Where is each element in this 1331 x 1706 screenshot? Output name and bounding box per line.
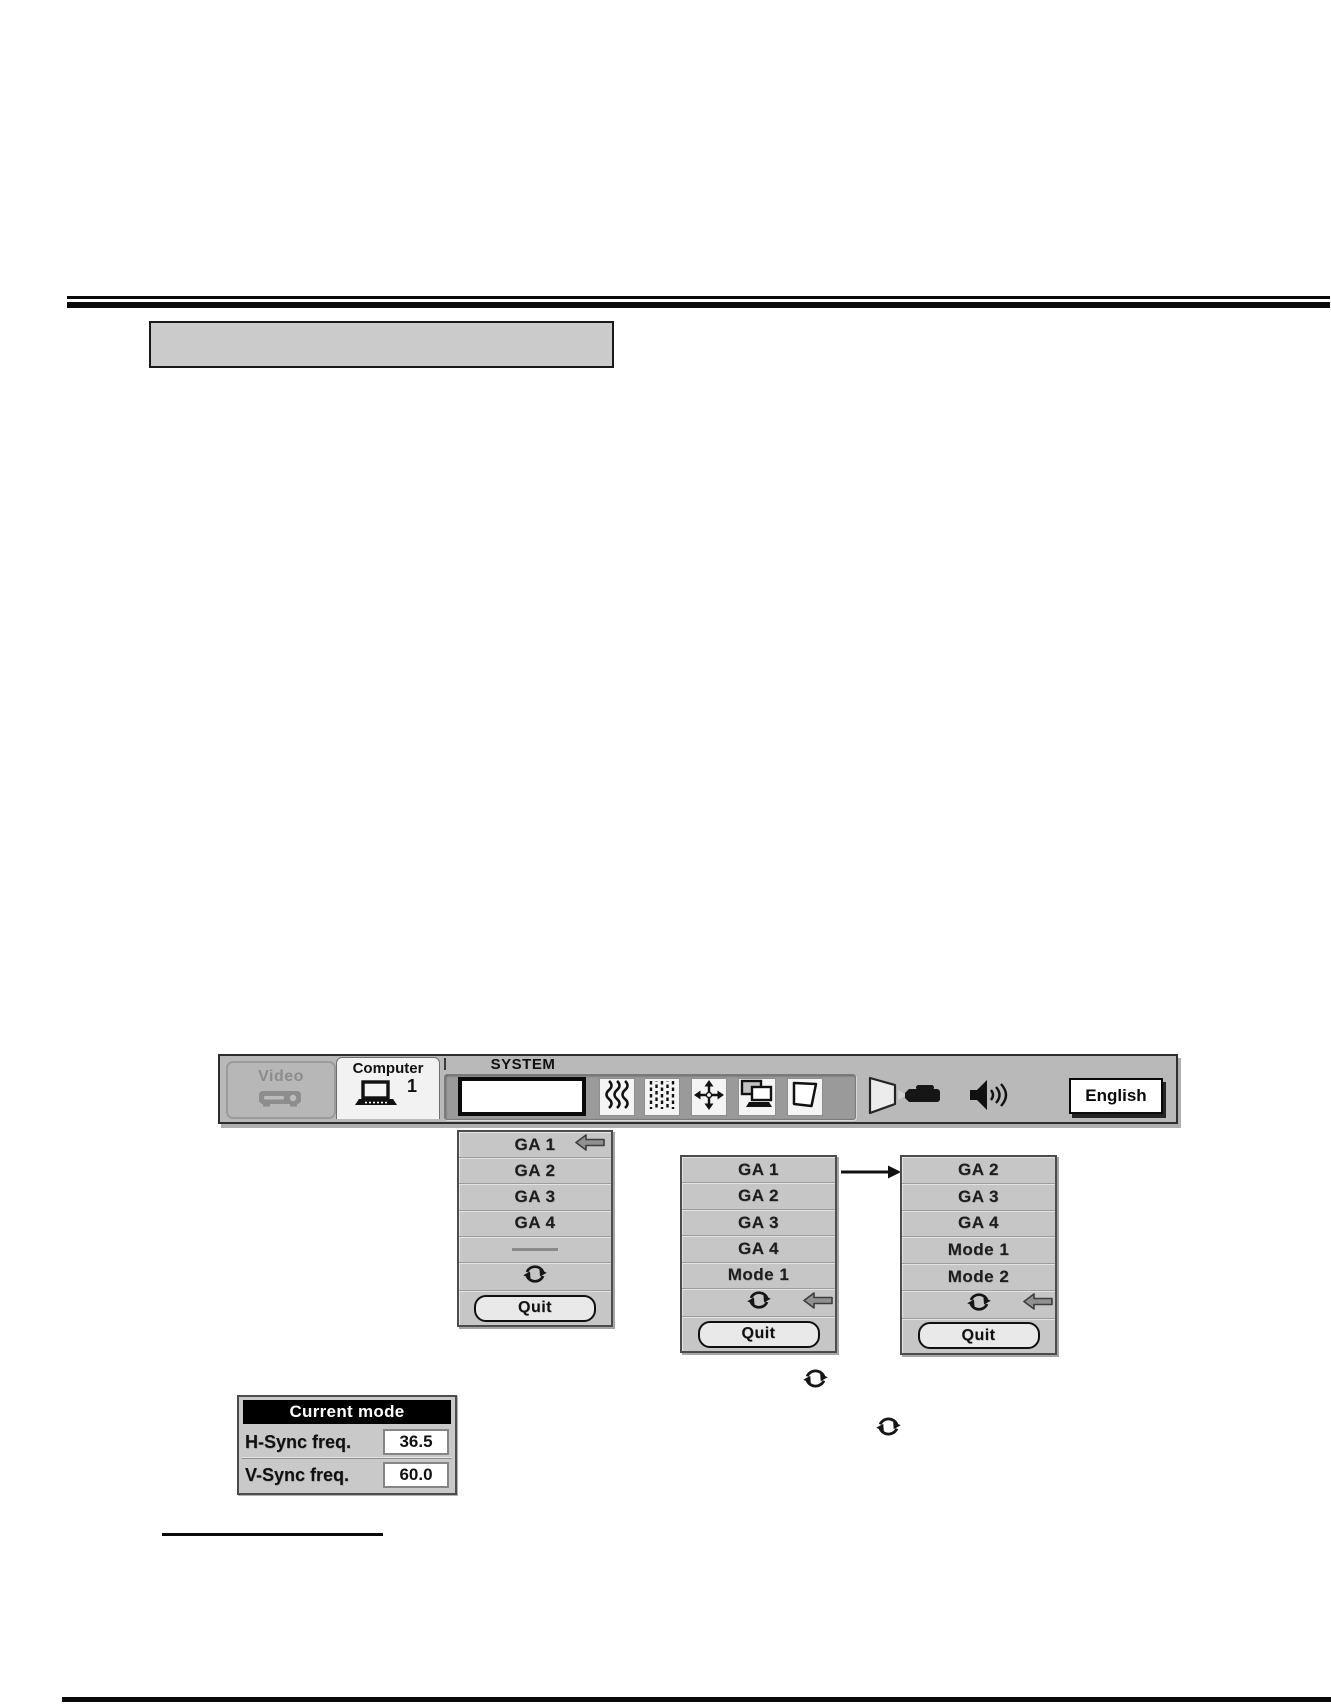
system-menu-2: GA 1 GA 2 GA 3 GA 4 Mode 1 Quit [680, 1155, 837, 1353]
computer-number: 1 [407, 1076, 417, 1097]
cycle-icon [967, 1291, 991, 1318]
menu1-item-ga2-label: GA 2 [514, 1161, 555, 1181]
v-sync-value: 60.0 [383, 1462, 449, 1488]
total-dots-button[interactable] [644, 1078, 680, 1116]
menu2-item-ga2-label: GA 2 [738, 1186, 779, 1206]
menu2-item-cycle[interactable] [682, 1289, 835, 1317]
bottom-rule [62, 1697, 1331, 1702]
cycle-icon [803, 1367, 828, 1395]
menu3-item-ga4-label: GA 4 [958, 1213, 999, 1233]
pc-adjust-button[interactable] [738, 1078, 776, 1116]
selection-pointer-icon [575, 1134, 605, 1156]
computer-tab[interactable]: Computer 1 [336, 1057, 440, 1119]
blank-dash [512, 1248, 558, 1251]
projection-icon [868, 1101, 944, 1118]
menu2-item-ga4[interactable]: GA 4 [682, 1236, 835, 1262]
v-sync-row: V-Sync freq. 60.0 [242, 1458, 452, 1491]
system-display-box [458, 1077, 586, 1116]
menu3-quit-label: Quit [962, 1327, 996, 1345]
manual-page: Video Computer 1 [0, 0, 1331, 1706]
menu3-quit-button[interactable]: Quit [918, 1322, 1040, 1349]
projection-indicator[interactable] [868, 1076, 944, 1119]
menu1-item-ga4[interactable]: GA 4 [459, 1211, 611, 1237]
menu1-quit-label: Quit [518, 1299, 552, 1317]
laptop-icon [353, 1080, 399, 1113]
top-rule-thick [67, 302, 1330, 308]
menu3-item-mode2[interactable]: Mode 2 [902, 1264, 1055, 1291]
menu3-item-ga2-label: GA 2 [958, 1160, 999, 1180]
v-sync-label: V-Sync freq. [245, 1465, 349, 1486]
menu2-item-ga2[interactable]: GA 2 [682, 1183, 835, 1209]
pc-adjust-icon [740, 1079, 774, 1116]
video-tab[interactable]: Video [226, 1061, 336, 1119]
h-sync-label: H-Sync freq. [245, 1432, 351, 1453]
menu3-item-mode1-label: Mode 1 [948, 1240, 1010, 1260]
cycle-icon [747, 1289, 771, 1316]
menu3-item-ga3-label: GA 3 [958, 1187, 999, 1207]
vcr-icon [258, 1088, 304, 1113]
menu3-item-ga2[interactable]: GA 2 [902, 1157, 1055, 1184]
osd-menu-bar: Video Computer 1 [218, 1054, 1178, 1124]
menu1-item-ga3-label: GA 3 [514, 1187, 555, 1207]
selection-pointer-icon [1023, 1293, 1053, 1315]
menu3-item-mode1[interactable]: Mode 1 [902, 1237, 1055, 1264]
fine-sync-button[interactable] [599, 1078, 635, 1116]
cycle-icon [876, 1415, 901, 1443]
screen-shape-button[interactable] [787, 1078, 823, 1116]
current-mode-panel: Current mode H-Sync freq. 36.5 V-Sync fr… [237, 1395, 457, 1495]
footnote-rule [162, 1533, 383, 1536]
menu1-item-cycle[interactable] [459, 1263, 611, 1291]
menu1-item-ga4-label: GA 4 [514, 1213, 555, 1233]
next-menu-arrow-icon [840, 1163, 902, 1186]
menu2-item-ga4-label: GA 4 [738, 1239, 779, 1259]
computer-tab-label: Computer [337, 1060, 439, 1077]
menu3-item-cycle[interactable] [902, 1291, 1055, 1319]
language-button-label: English [1085, 1086, 1146, 1106]
menu1-item-ga1[interactable]: GA 1 [459, 1132, 611, 1158]
menu2-item-mode1[interactable]: Mode 1 [682, 1263, 835, 1289]
video-tab-label: Video [258, 1068, 304, 1086]
menu3-item-ga4[interactable]: GA 4 [902, 1211, 1055, 1238]
system-menu-3: GA 2 GA 3 GA 4 Mode 1 Mode 2 Quit [900, 1155, 1057, 1355]
position-button[interactable] [691, 1078, 727, 1116]
total-dots-icon [648, 1079, 676, 1116]
menu2-quit-button[interactable]: Quit [698, 1321, 820, 1348]
menu1-item-ga1-label: GA 1 [514, 1135, 555, 1155]
top-rule-thin [67, 296, 1330, 299]
h-sync-row: H-Sync freq. 36.5 [242, 1426, 452, 1458]
menu2-item-ga1[interactable]: GA 1 [682, 1157, 835, 1183]
menu2-quit-row: Quit [682, 1317, 835, 1351]
menu2-quit-label: Quit [742, 1325, 776, 1343]
menu2-item-ga3-label: GA 3 [738, 1213, 779, 1233]
system-label: SYSTEM [467, 1056, 579, 1073]
menu1-item-blank[interactable] [459, 1237, 611, 1263]
volume-icon [968, 1099, 1012, 1116]
menu2-item-ga3[interactable]: GA 3 [682, 1210, 835, 1236]
menu2-item-ga1-label: GA 1 [738, 1160, 779, 1180]
position-move-icon [694, 1080, 724, 1115]
h-sync-value: 36.5 [383, 1429, 449, 1455]
fine-sync-icon [603, 1079, 631, 1116]
section-title-box [149, 321, 614, 368]
menu1-item-ga3[interactable]: GA 3 [459, 1184, 611, 1210]
menu1-item-ga2[interactable]: GA 2 [459, 1158, 611, 1184]
screen-shape-icon [790, 1080, 820, 1115]
volume-control[interactable] [968, 1078, 1012, 1117]
current-mode-title: Current mode [243, 1400, 451, 1424]
system-menu-1: GA 1 GA 2 GA 3 GA 4 Quit [457, 1130, 613, 1327]
menu1-quit-row: Quit [459, 1291, 611, 1325]
selection-pointer-icon [803, 1292, 833, 1314]
language-button[interactable]: English [1069, 1078, 1163, 1114]
cycle-icon [523, 1263, 547, 1290]
menu1-quit-button[interactable]: Quit [474, 1295, 596, 1322]
menu3-item-ga3[interactable]: GA 3 [902, 1184, 1055, 1211]
menu3-item-mode2-label: Mode 2 [948, 1267, 1010, 1287]
menu3-quit-row: Quit [902, 1319, 1055, 1353]
menu2-item-mode1-label: Mode 1 [728, 1265, 790, 1285]
tab-divider [444, 1058, 446, 1070]
